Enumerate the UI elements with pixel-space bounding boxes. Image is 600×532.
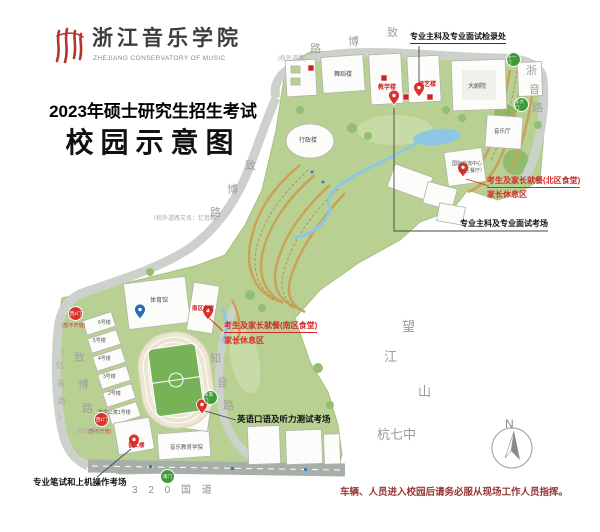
label-yinyueting: 音乐厅 — [494, 130, 511, 136]
label-nanqu: 南区食堂 — [192, 307, 214, 313]
road-zhiyin-1: 知 — [210, 354, 221, 365]
exam-marker-icon — [308, 65, 314, 71]
label-yingong: 音工楼 — [128, 444, 145, 450]
road-yiyin-4: 路 — [58, 398, 66, 406]
callout-north-rest: 家长休息区 — [487, 191, 527, 199]
road-zhibo-bot-3: 路 — [82, 404, 93, 415]
callout-english-exam: 英语口语及听力测试考场 — [237, 415, 331, 424]
logo-text-cn: 浙江音乐学院 — [92, 28, 242, 49]
road-zhibo-top-2: 博 — [348, 37, 359, 48]
compass-n-label: N — [505, 418, 514, 430]
label-yinjiao: 音乐教育学院 — [170, 446, 203, 452]
road-zheyin-1: 浙 — [526, 66, 537, 77]
building-s2 — [285, 429, 322, 464]
label-guoji-2: （北区餐厅） — [455, 169, 485, 174]
gate-dongda: 东大门 — [514, 97, 529, 112]
callout-south-rest: 家长休息区 — [224, 337, 264, 345]
road-zhibo-mid-1: 致 — [245, 161, 256, 172]
road-yiyin-5: ） — [58, 414, 66, 422]
seal-icon — [57, 29, 83, 62]
callout-main-exam: 专业主科及专业面试考场 — [460, 220, 548, 228]
gate-dongnan: 东南门 — [203, 390, 218, 405]
label-tiyuguan: 体育馆 — [150, 298, 168, 304]
label-dorm2: 2号楼 — [108, 392, 121, 397]
label-zongyi: 综艺楼 — [418, 82, 436, 88]
building-s3 — [323, 434, 340, 465]
road-yiyin-3: 音 — [57, 380, 65, 388]
campus-map: 浙江音乐学院 ZHEJIANG CONSERVATORY OF MUSIC 20… — [0, 0, 600, 532]
road-zhiyin-2: 音 — [217, 378, 228, 389]
gate-dongyi: 东一门 — [506, 52, 521, 67]
map-graphic — [0, 0, 600, 532]
exam-marker-icon — [381, 75, 387, 81]
road-offcampus-alias: （校外道路又名：忆音路） — [150, 216, 222, 222]
gate-xi2: 西2门 — [68, 306, 83, 321]
road-zhibo-bot-1: 致 — [74, 353, 85, 364]
exam-marker-icon — [427, 94, 433, 100]
label-dorm3: 3号楼 — [103, 375, 116, 380]
road-offcampus-top: (校外道路) — [278, 56, 306, 62]
callout-north-dining: 考生及家长就餐(北区食堂) — [487, 177, 580, 188]
road-zhibo-top-1: 致 — [387, 28, 398, 39]
gate-nan: 南门 — [160, 469, 175, 484]
road-zheyin-3: 路 — [532, 103, 543, 114]
label-xingzheng: 行政楼 — [299, 138, 317, 144]
road-g320-label: 3 2 0 国 道 — [132, 486, 216, 496]
label-dorm6: 6号楼 — [98, 321, 111, 326]
road-yiyin-1: （ — [57, 349, 65, 357]
landmark-jiang: 江 — [384, 350, 397, 363]
label-dorm4: 4号楼 — [98, 357, 111, 362]
road-zheyin-2: 音 — [529, 85, 540, 96]
road-zhiyin-3: 路 — [223, 401, 234, 412]
landmark-shan: 山 — [418, 385, 431, 398]
road-zhibo-top-3: 路 — [310, 44, 321, 55]
label-guoji-1: 国际交流中心 — [452, 162, 482, 167]
landmark-hangqizhong: 杭七中 — [377, 428, 416, 441]
label-wudao: 舞蹈楼 — [334, 72, 352, 78]
building-zongyi — [407, 55, 441, 103]
page-title-line1: 2023年硕士研究生招生考试 — [48, 103, 258, 120]
compass-icon — [492, 428, 532, 468]
road-zhibo-mid-2: 博 — [227, 185, 238, 196]
road-zhibo-bot-2: 博 — [78, 380, 89, 391]
callout-south-dining: 考生及家长就餐(南区食堂) — [224, 322, 317, 333]
callout-checkin: 专业主科及专业面试检录处 — [410, 33, 506, 44]
label-dajuyuan: 大剧院 — [468, 84, 486, 90]
gate-xi1: 西1门 — [94, 412, 109, 427]
road-yiyin-2: 忆 — [56, 362, 64, 370]
road-offcampus-left: (校外道路) — [76, 429, 104, 435]
label-dorm5: 5号楼 — [93, 339, 106, 344]
exam-marker-icon — [403, 94, 409, 100]
page-title-line2: 校园示意图 — [48, 130, 258, 158]
building-s1 — [247, 425, 280, 464]
notice-text: 车辆、人员进入校园后请务必服从现场工作人员指挥。 — [340, 488, 568, 498]
label-jiaoxue: 教学楼 — [378, 85, 396, 91]
gate-xi2-note: (暂不开放) — [62, 322, 85, 329]
landmark-wang: 望 — [402, 320, 415, 333]
logo-text-en: ZHEJIANG CONSERVATORY OF MUSIC — [93, 56, 226, 63]
callout-written-exam: 专业笔试和上机操作考场 — [33, 478, 127, 487]
